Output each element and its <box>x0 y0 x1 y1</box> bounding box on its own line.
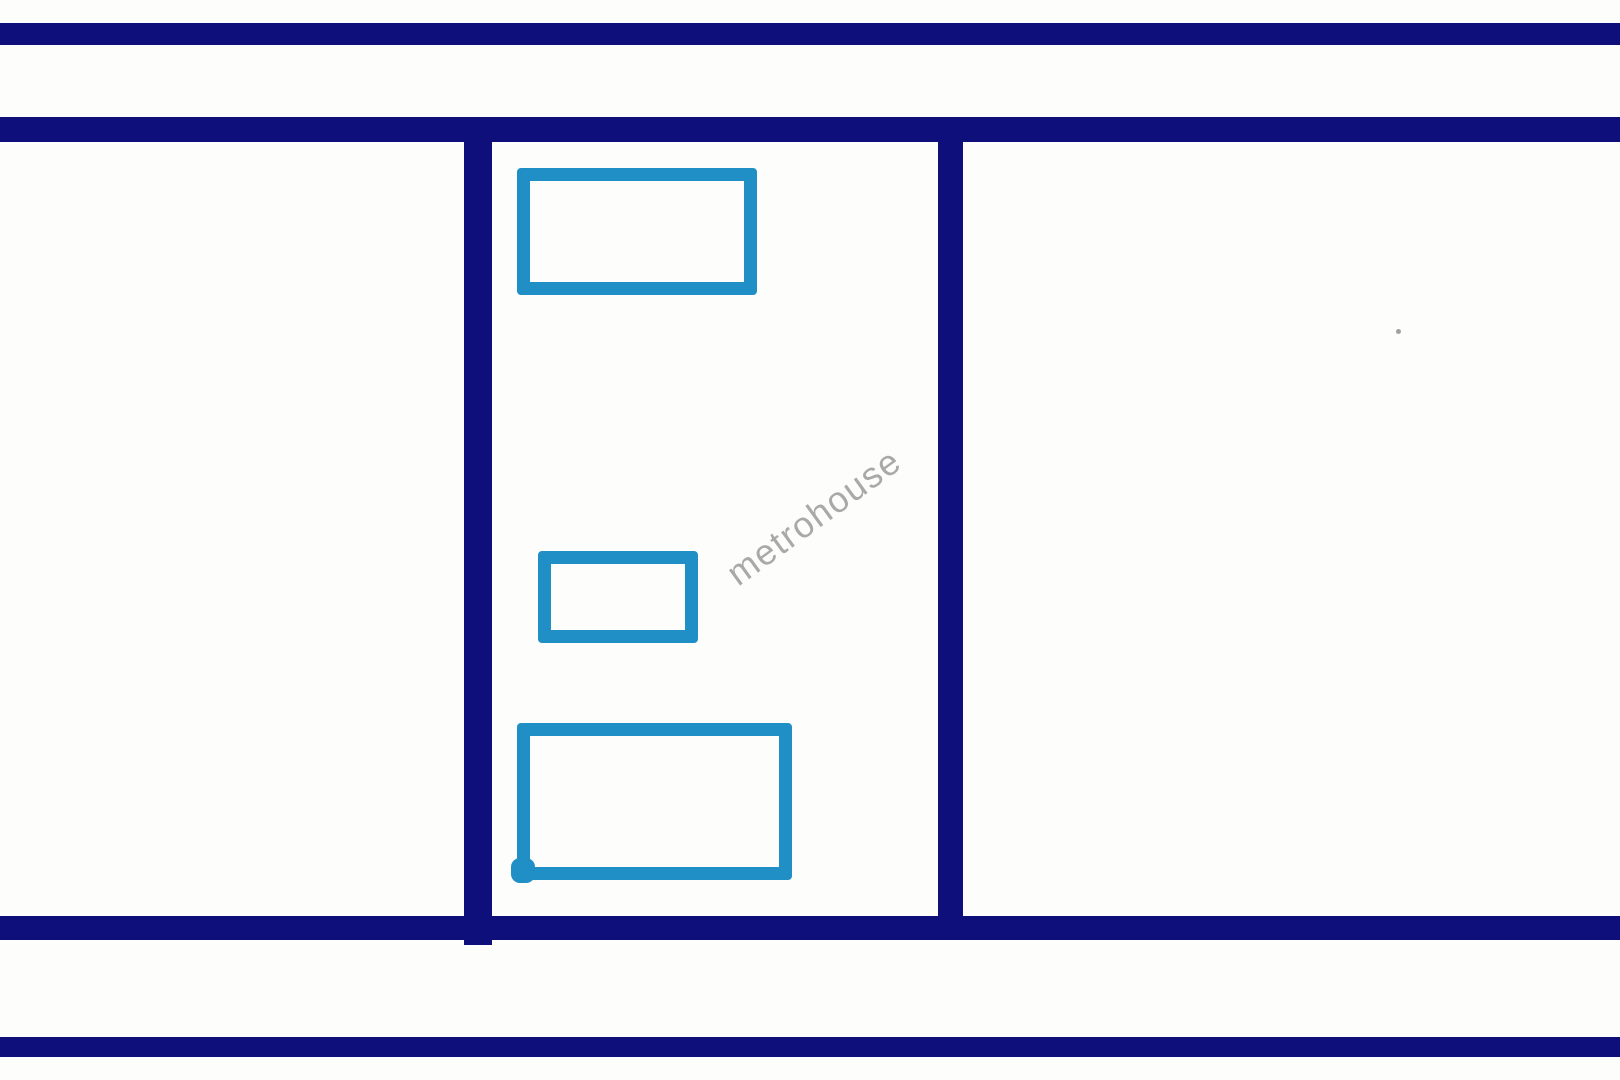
room-outline-top <box>517 168 757 295</box>
pen-stroke-blob <box>511 858 535 883</box>
artifact-dot <box>1396 329 1401 334</box>
floorplan-sketch: metrohouse <box>0 0 1620 1080</box>
room-outline-middle <box>538 551 698 643</box>
bottom-outer-band <box>0 1037 1620 1057</box>
left-panel <box>0 142 464 916</box>
right-panel <box>963 142 1620 916</box>
top-outer-band <box>0 23 1620 45</box>
bottom-inner-band <box>0 916 1620 940</box>
room-outline-bottom <box>517 723 792 880</box>
right-vertical-divider <box>938 142 963 940</box>
left-vertical-divider <box>464 142 492 945</box>
top-inner-band <box>0 117 1620 142</box>
